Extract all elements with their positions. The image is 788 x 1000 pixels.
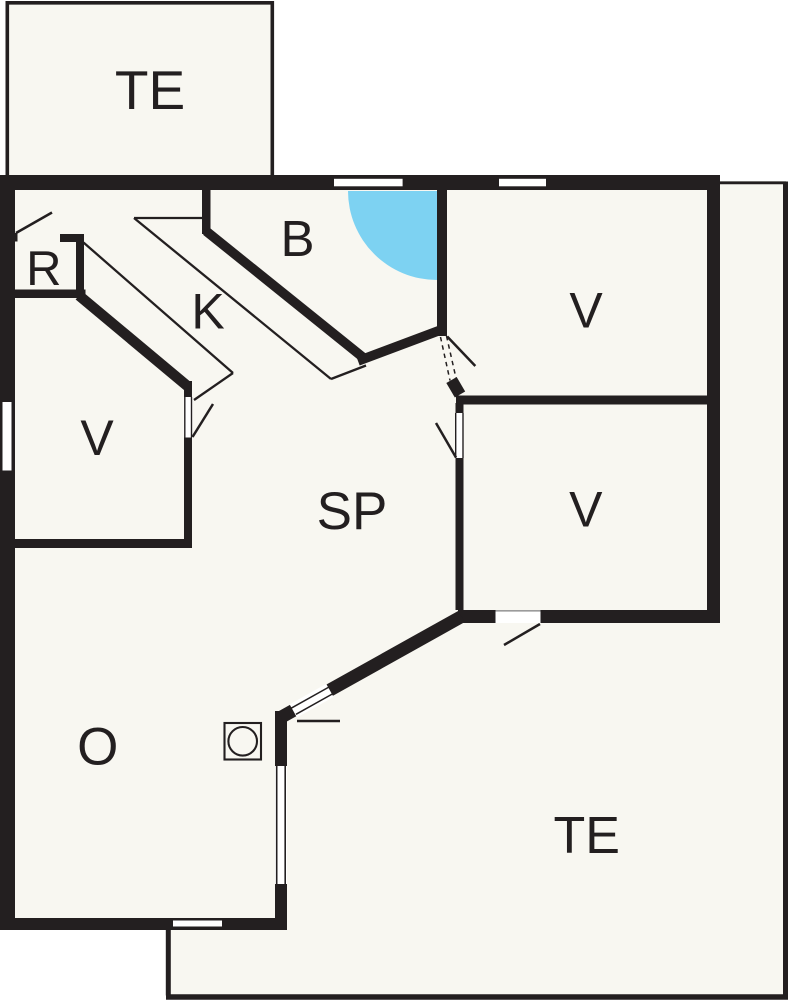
svg-text:O: O [77, 718, 118, 777]
svg-text:V: V [569, 482, 603, 538]
svg-text:V: V [569, 283, 603, 339]
svg-text:K: K [191, 283, 224, 339]
svg-text:V: V [80, 410, 114, 466]
svg-text:TE: TE [553, 807, 619, 865]
svg-text:TE: TE [115, 59, 185, 121]
svg-text:R: R [26, 242, 61, 296]
svg-text:B: B [280, 210, 314, 267]
svg-text:SP: SP [317, 482, 388, 541]
